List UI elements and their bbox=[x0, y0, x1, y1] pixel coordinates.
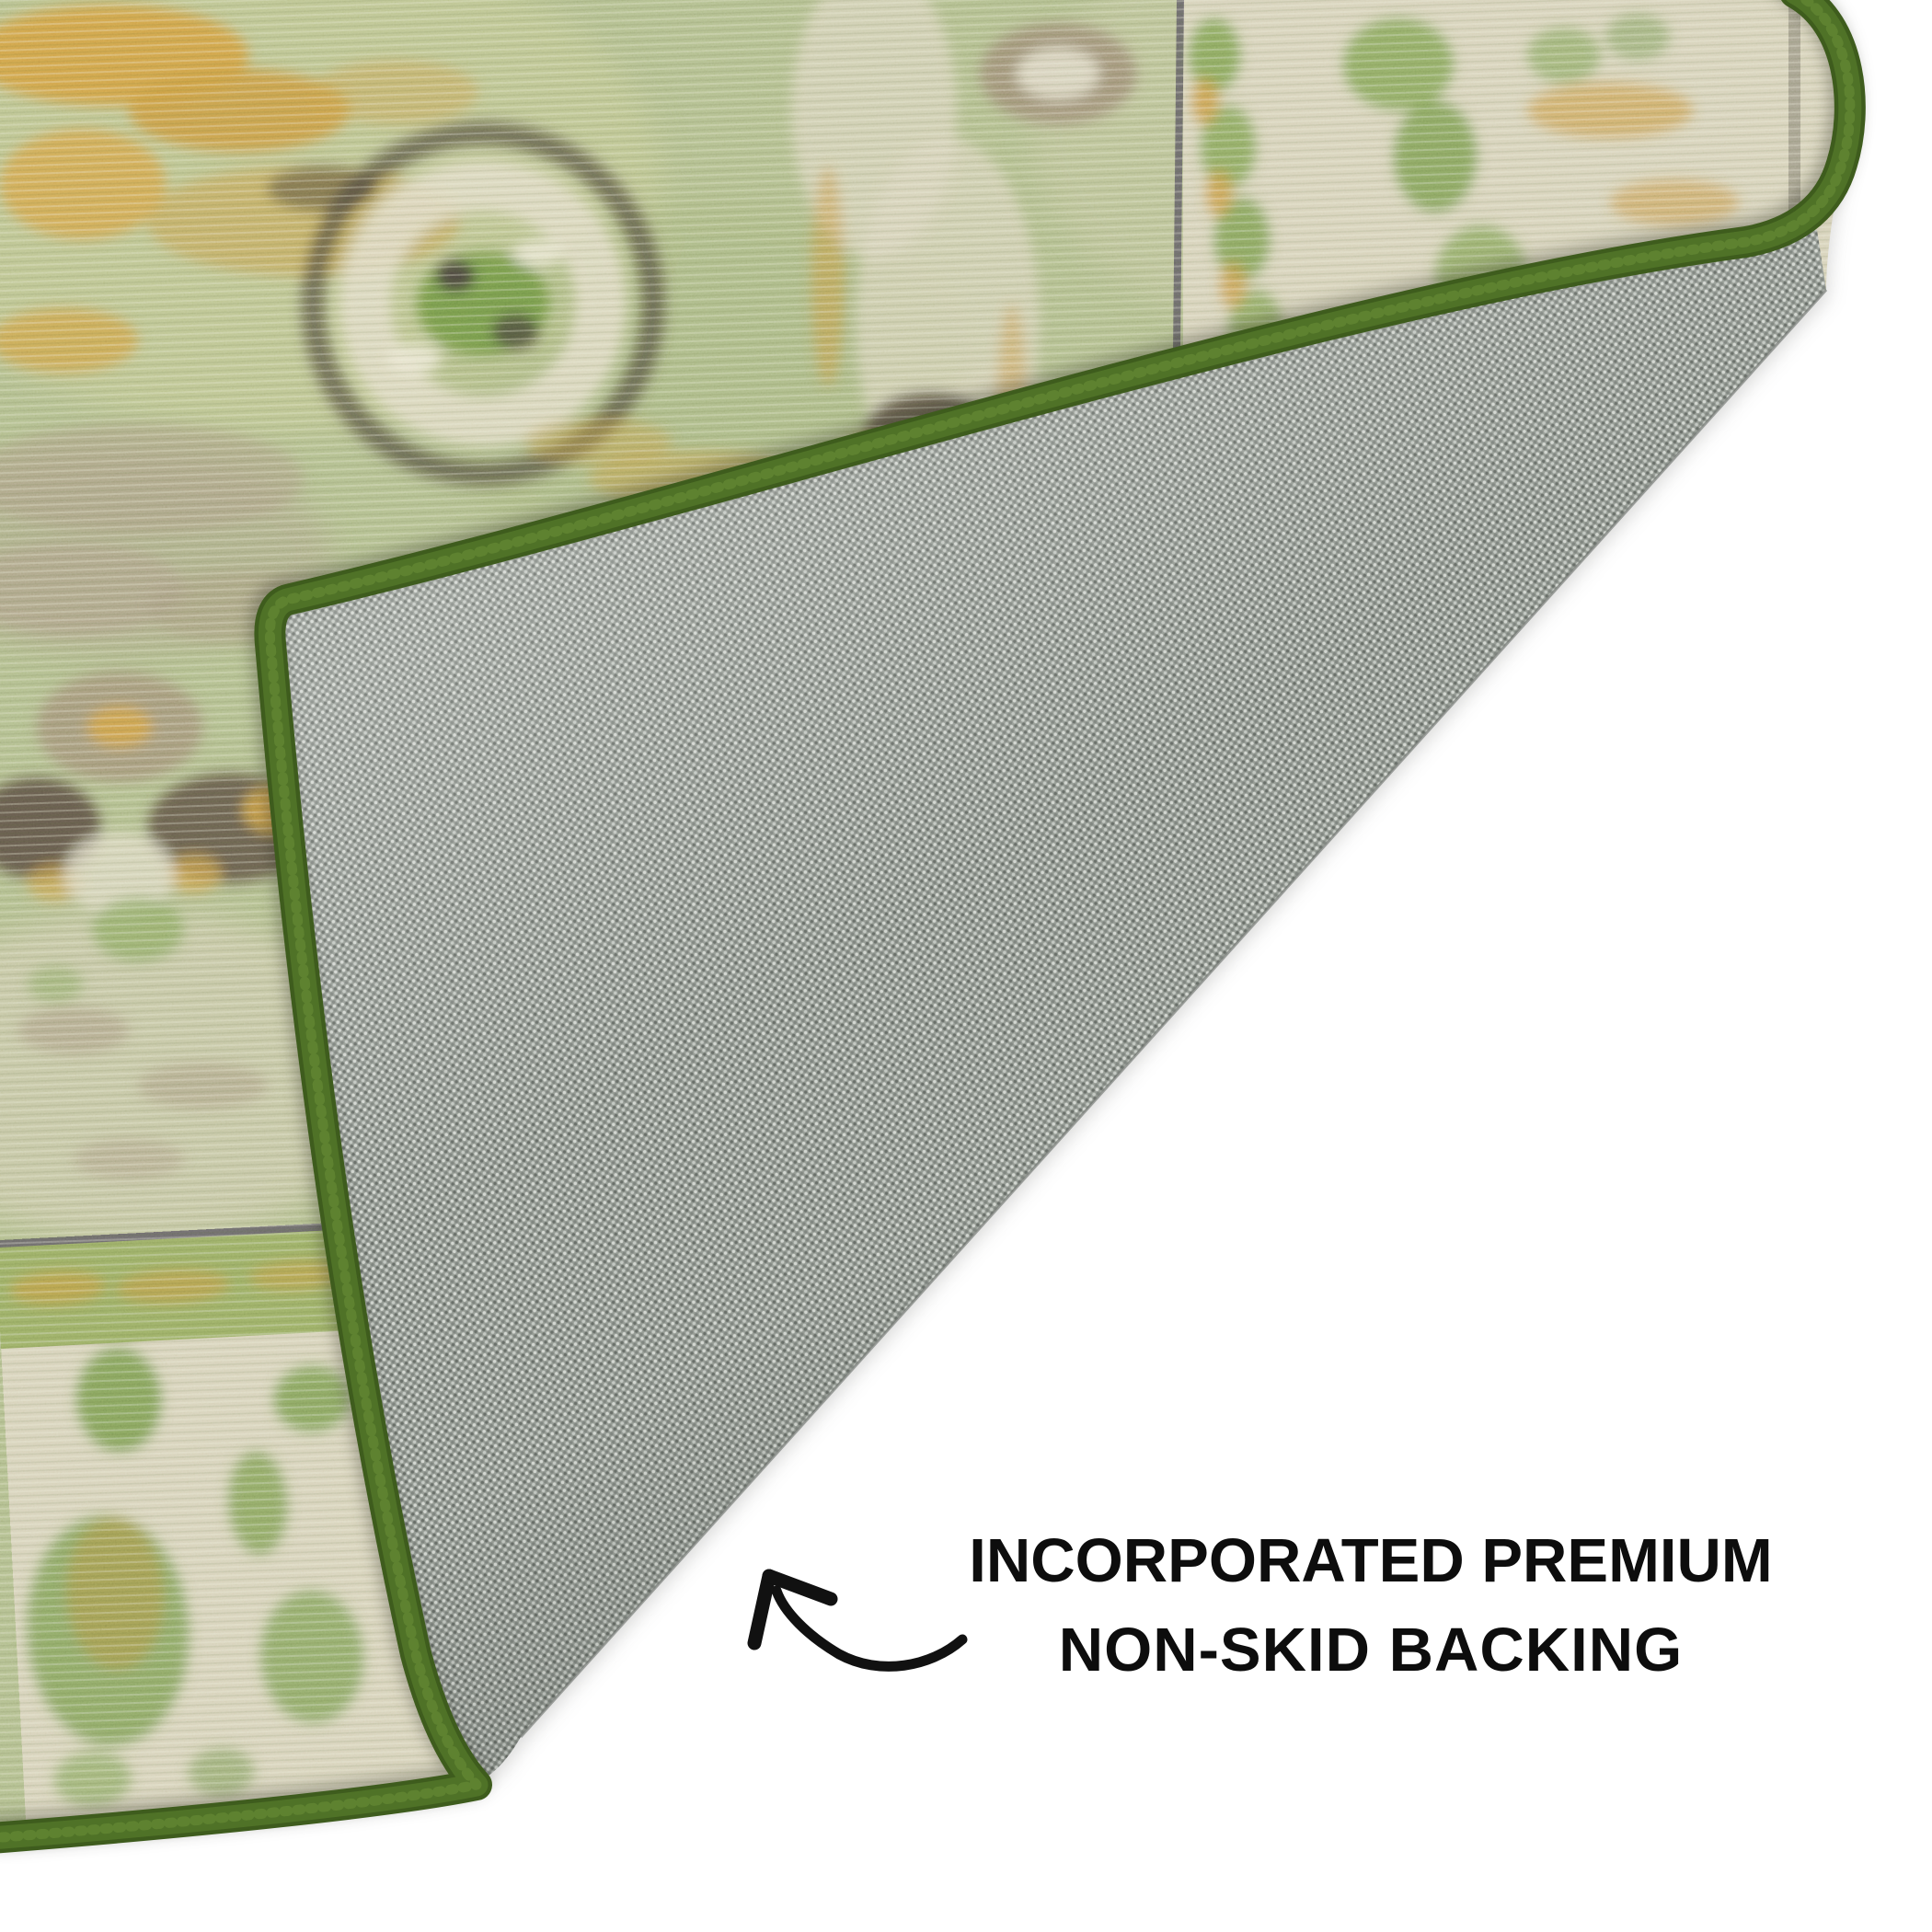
caption-line1: INCORPORATED PREMIUM bbox=[925, 1516, 1817, 1605]
product-photo: INCORPORATED PREMIUM NON-SKID BACKING bbox=[0, 0, 1932, 1932]
caption-line2: NON-SKID BACKING bbox=[925, 1605, 1817, 1695]
caption: INCORPORATED PREMIUM NON-SKID BACKING bbox=[925, 1516, 1817, 1695]
